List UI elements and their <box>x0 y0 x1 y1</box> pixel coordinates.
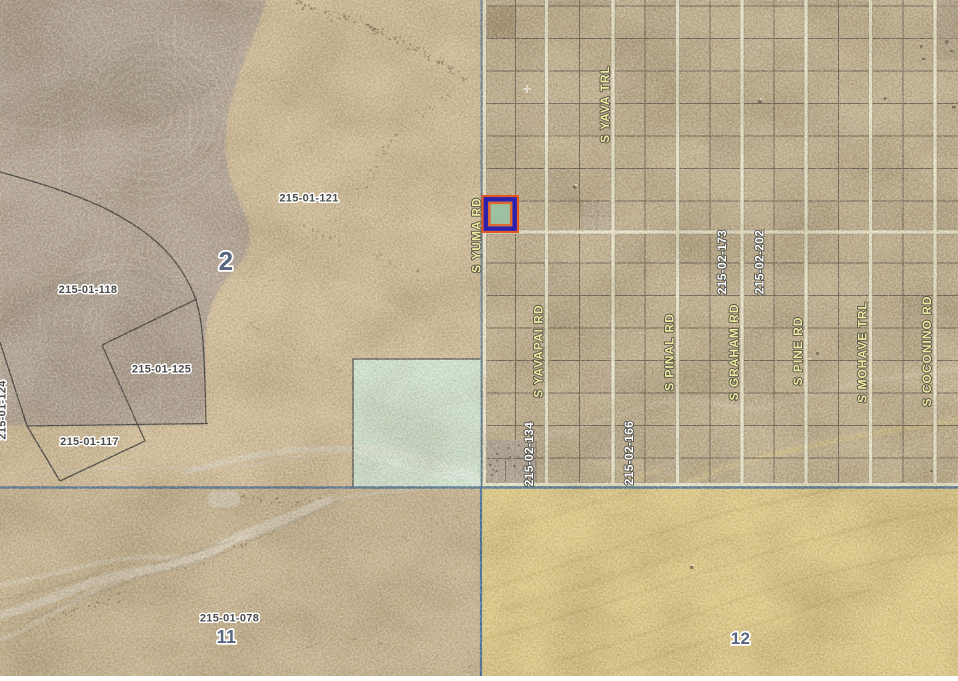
svg-text:215-02-173: 215-02-173 <box>715 230 729 294</box>
svg-text:S YAVAPAI RD: S YAVAPAI RD <box>532 304 546 397</box>
svg-text:215-01-125: 215-01-125 <box>132 364 191 376</box>
svg-text:215-01-118: 215-01-118 <box>59 284 118 296</box>
svg-text:S COCONINO RD: S COCONINO RD <box>920 295 934 406</box>
svg-text:215-01-124: 215-01-124 <box>0 380 9 440</box>
svg-text:S PINE RD: S PINE RD <box>791 316 805 385</box>
svg-text:215-01-117: 215-01-117 <box>60 436 119 448</box>
svg-text:2: 2 <box>219 246 234 276</box>
svg-text:S PINAL RD: S PINAL RD <box>663 313 677 391</box>
svg-text:S GRAHAM RD: S GRAHAM RD <box>727 304 741 401</box>
svg-text:215-01-121: 215-01-121 <box>279 193 338 205</box>
svg-text:S YAVA TRL: S YAVA TRL <box>598 65 612 143</box>
svg-text:S YUMA RD: S YUMA RD <box>470 197 484 273</box>
svg-text:215-02-134: 215-02-134 <box>522 422 536 486</box>
svg-text:215-02-166: 215-02-166 <box>622 421 636 485</box>
svg-text:S MOHAVE TRL: S MOHAVE TRL <box>856 301 870 403</box>
svg-text:12: 12 <box>731 629 751 648</box>
svg-text:11: 11 <box>217 627 237 647</box>
svg-text:215-02-202: 215-02-202 <box>753 230 767 294</box>
svg-text:215-01-078: 215-01-078 <box>200 613 259 625</box>
